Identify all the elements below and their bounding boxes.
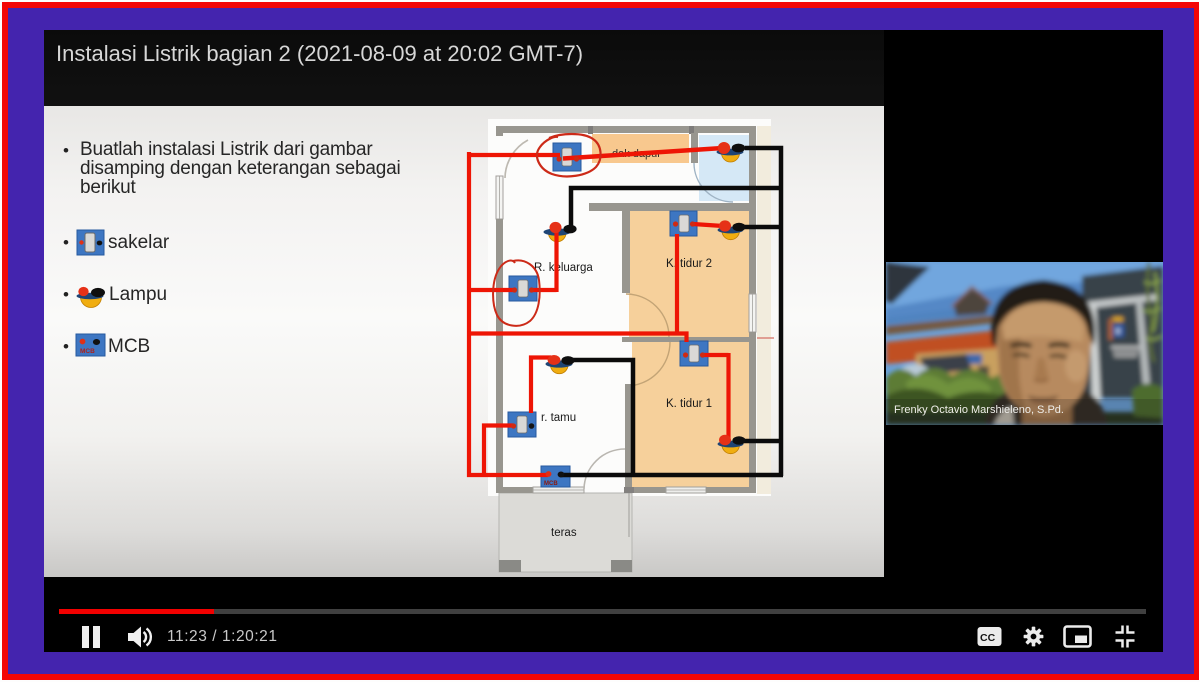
svg-text:K. tidur 1: K. tidur 1 [666, 398, 712, 410]
svg-text:K. tidur 2: K. tidur 2 [666, 258, 712, 270]
svg-text:teras: teras [551, 527, 577, 539]
svg-text:Frenky Octavio Marshieleno, S.: Frenky Octavio Marshieleno, S.Pd. [894, 404, 1064, 416]
svg-text:CC: CC [980, 632, 996, 644]
svg-text:R. keluarga: R. keluarga [534, 262, 593, 274]
svg-text:MCB: MCB [544, 481, 558, 487]
svg-text:r. tamu: r. tamu [541, 412, 576, 424]
